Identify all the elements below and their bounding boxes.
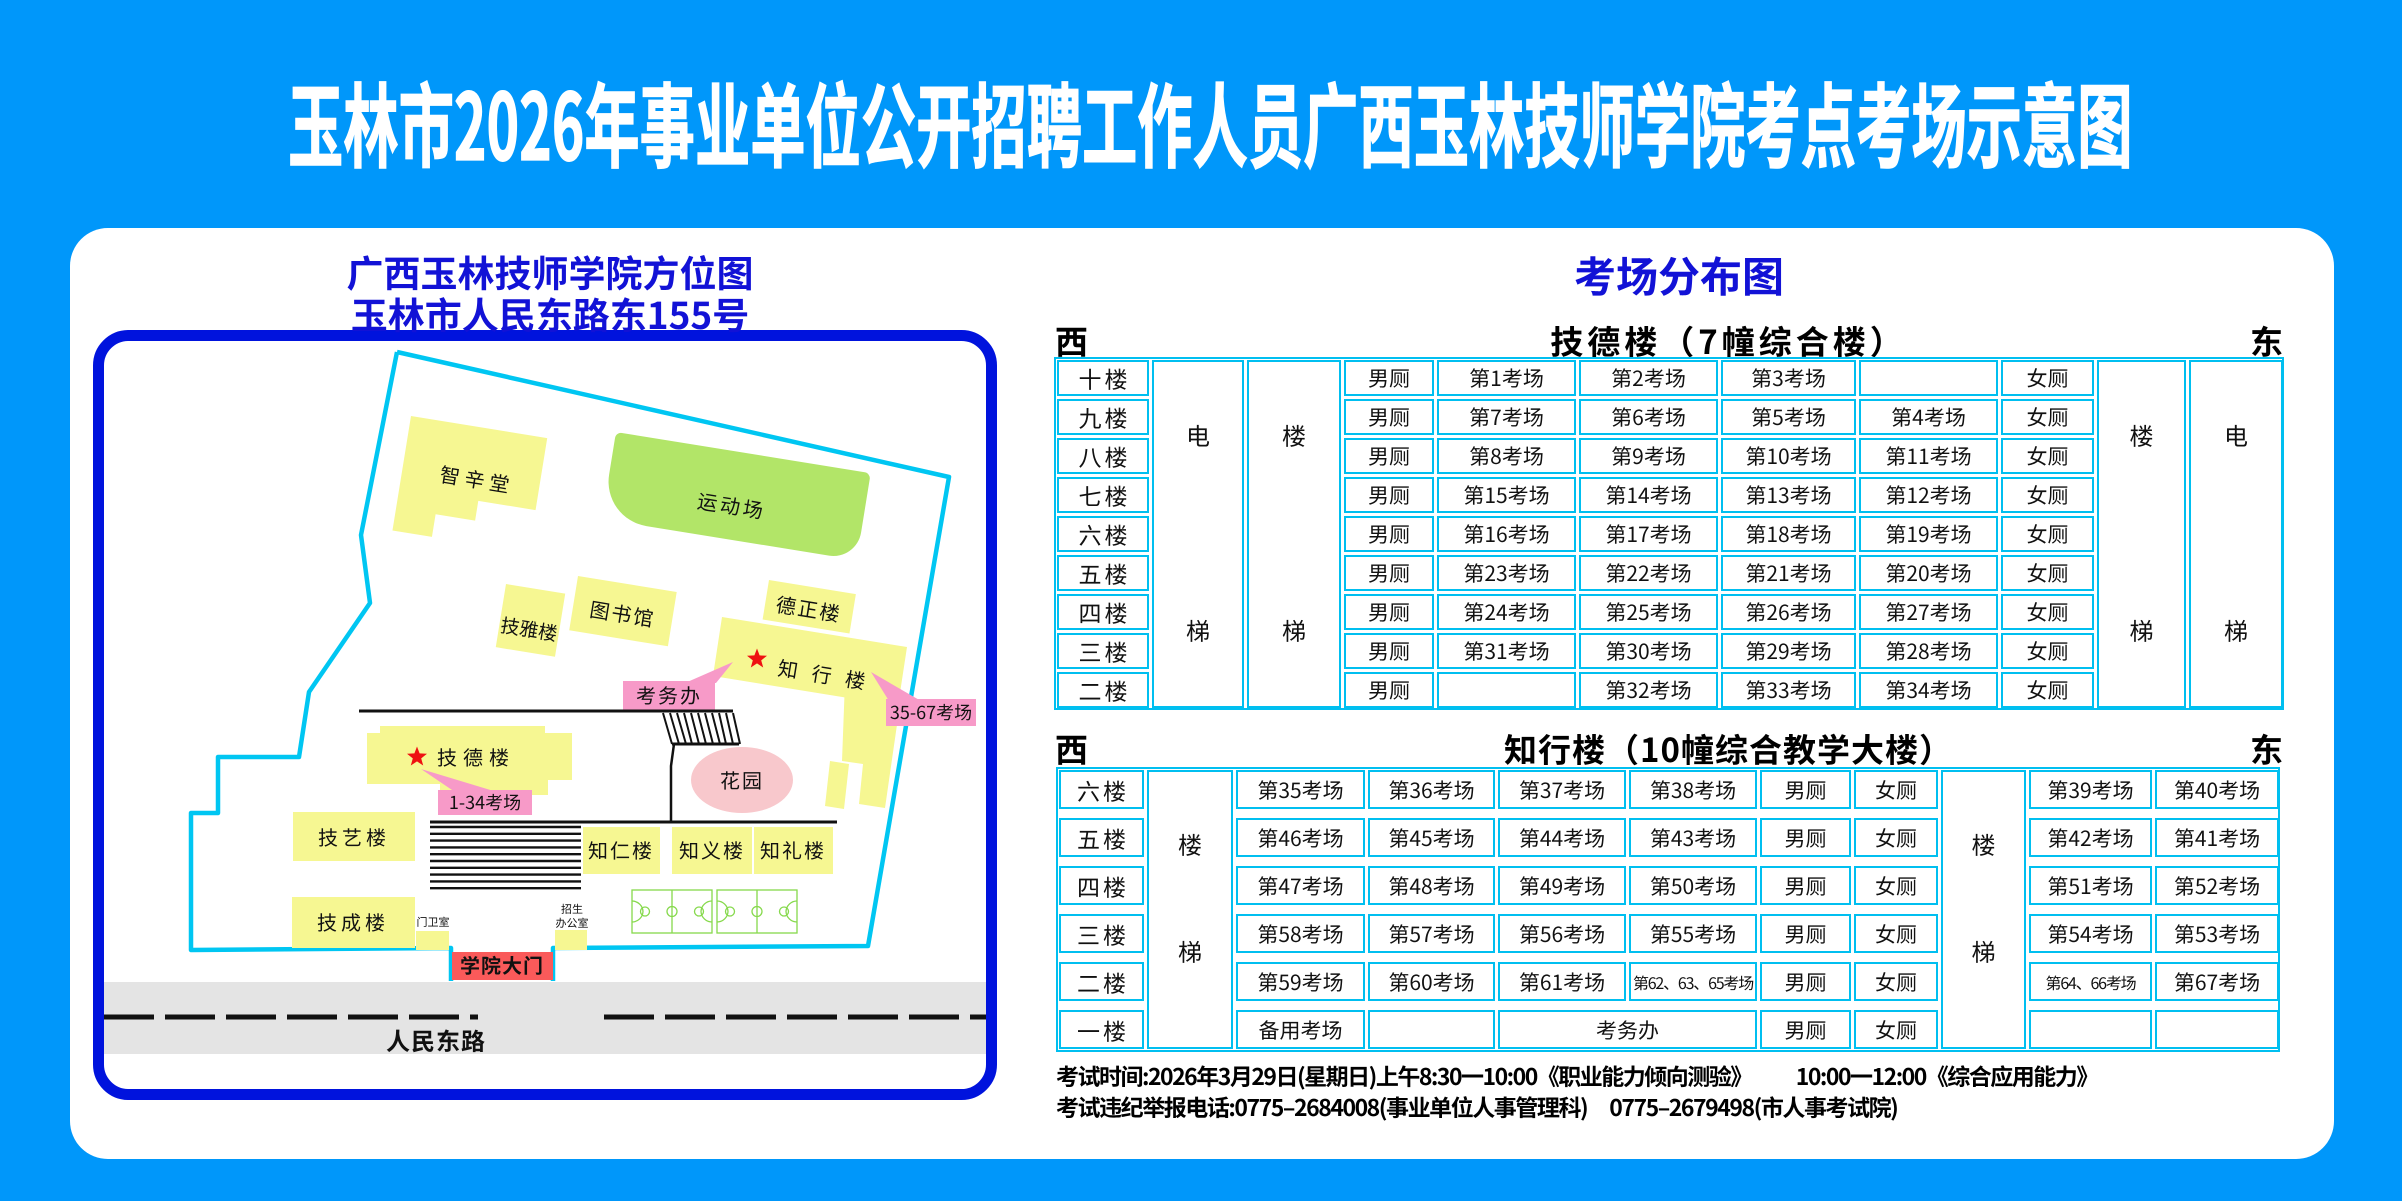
svg-text:办公室: 办公室 bbox=[556, 915, 589, 931]
svg-text:技德楼: 技德楼 bbox=[437, 742, 515, 771]
svg-text:花园: 花园 bbox=[720, 765, 764, 794]
svg-text:技艺楼: 技艺楼 bbox=[318, 822, 390, 851]
svg-text:学院大门: 学院大门 bbox=[460, 950, 544, 979]
svg-text:技成楼: 技成楼 bbox=[317, 907, 389, 936]
svg-text:人民东路: 人民东路 bbox=[386, 1022, 486, 1057]
svg-text:35-67考场: 35-67考场 bbox=[890, 699, 972, 725]
svg-text:1-34考场: 1-34考场 bbox=[449, 789, 521, 815]
svg-text:门卫室: 门卫室 bbox=[417, 914, 450, 930]
svg-text:考务办: 考务办 bbox=[636, 680, 702, 709]
svg-text:知礼楼: 知礼楼 bbox=[760, 835, 826, 864]
svg-text:知义楼: 知义楼 bbox=[679, 835, 745, 864]
svg-text:知仁楼: 知仁楼 bbox=[588, 835, 654, 864]
